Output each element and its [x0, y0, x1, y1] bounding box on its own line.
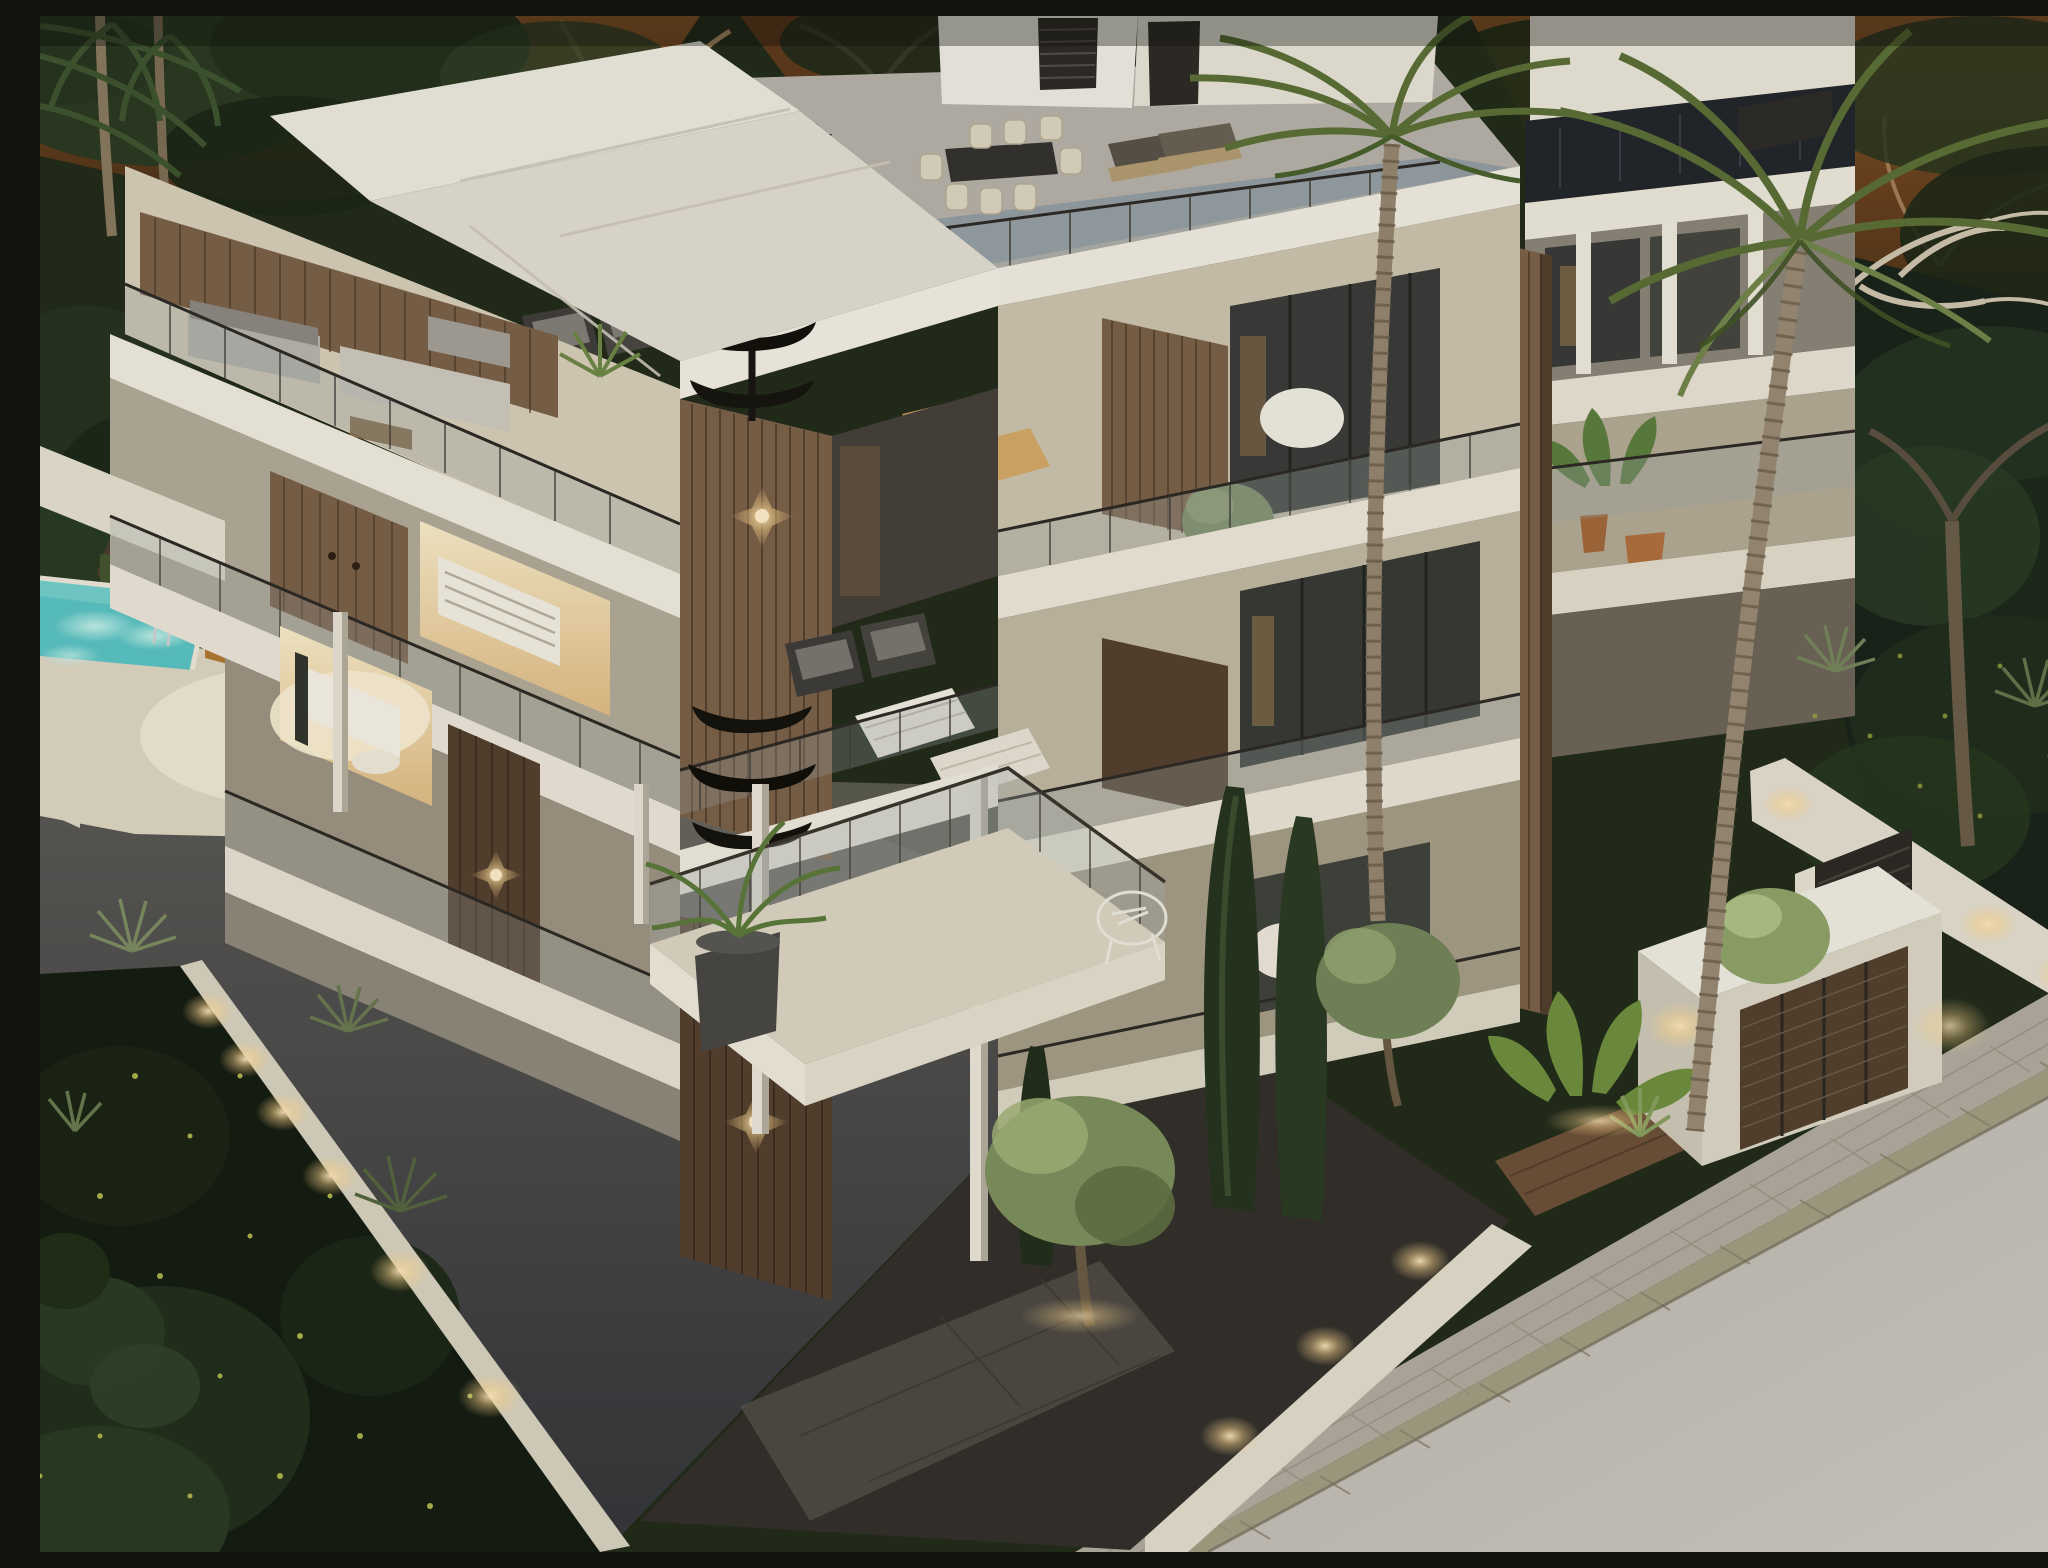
architectural-render-scene: Aerial dusk rendering of a modern white … — [40, 16, 2048, 1552]
scene-canvas — [40, 16, 2048, 1552]
vignette — [40, 16, 2048, 1552]
